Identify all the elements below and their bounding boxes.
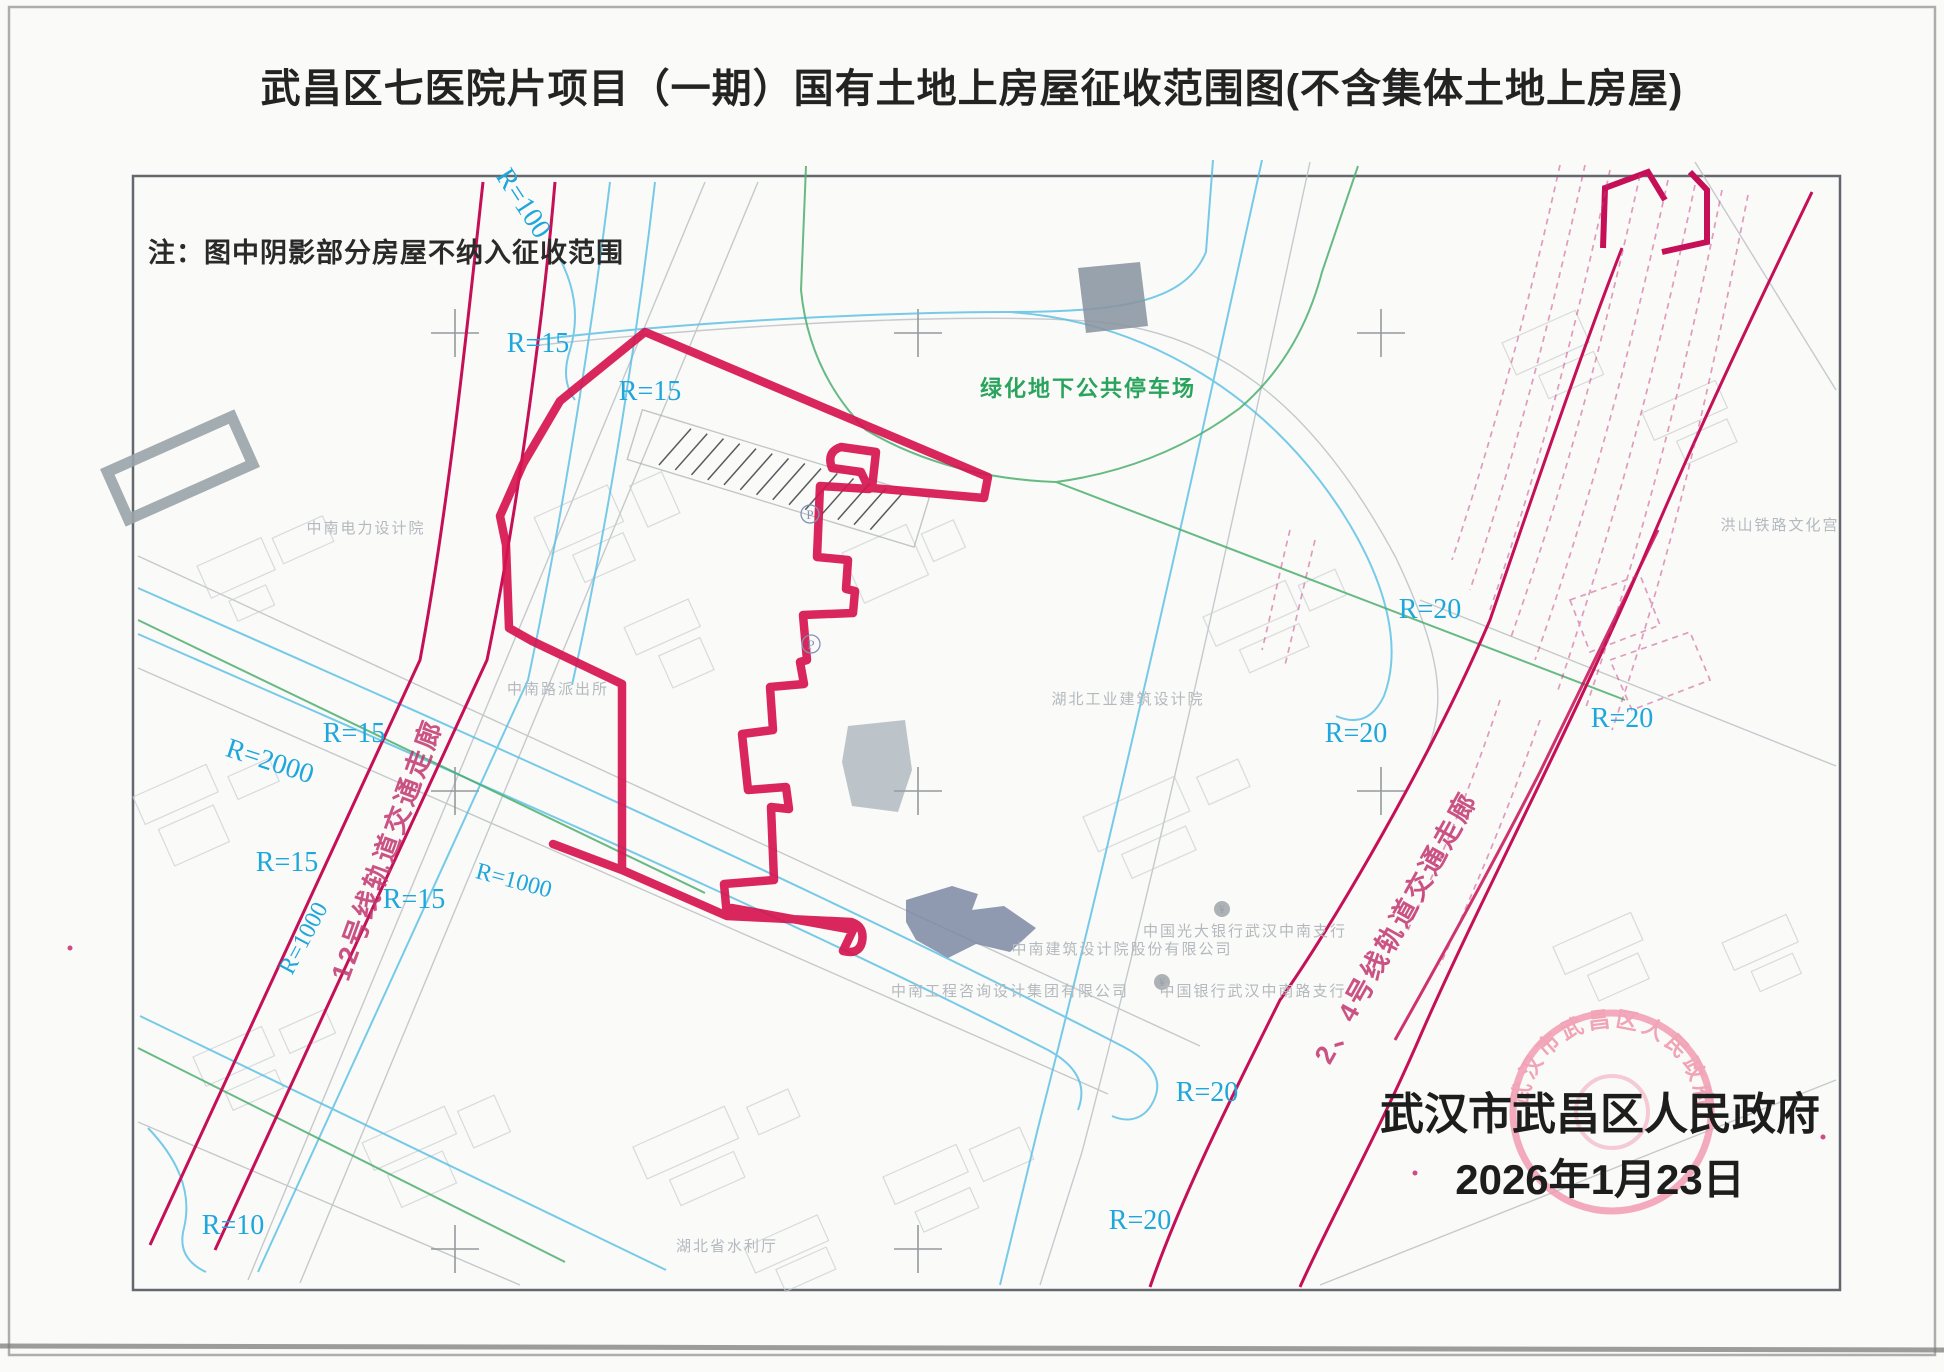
- svg-text:¥: ¥: [1219, 902, 1225, 916]
- building-label: 洪山铁路文化宫: [1720, 517, 1839, 534]
- radius-label: R=1000: [473, 858, 555, 903]
- survey-cross-marks: [431, 309, 1405, 1273]
- radius-label: R=15: [323, 718, 385, 749]
- svg-text:P: P: [806, 507, 813, 522]
- radius-label: R=20: [1109, 1205, 1171, 1236]
- radius-label: R=20: [1399, 594, 1461, 625]
- issue-date: 2026年1月23日: [1370, 1146, 1830, 1207]
- shaded-building-mid: [842, 720, 912, 812]
- radius-label: R=20: [1325, 718, 1387, 749]
- radius-label: R=15: [256, 847, 318, 878]
- map-title: 武昌区七医院片项目（一期）国有土地上房屋征收范围图(不含集体土地上房屋): [0, 56, 1944, 114]
- radius-label: R=2000: [222, 733, 318, 790]
- radius-label: R=20: [1591, 703, 1653, 734]
- scan-edge-line: [0, 1346, 1944, 1350]
- radius-label: R=1000: [274, 898, 333, 979]
- building-label: 中南工程咨询设计集团有限公司: [891, 983, 1129, 1000]
- building-label: 中南路派出所: [507, 681, 609, 698]
- radius-label: R=15: [383, 884, 445, 915]
- shaded-building-top: [1078, 262, 1148, 333]
- issuing-authority: 武汉市武昌区人民政府: [1370, 1078, 1830, 1142]
- scribble-band: [1262, 165, 1748, 965]
- building-label: 湖北工业建筑设计院: [1051, 690, 1204, 708]
- building-label: 中国光大银行武汉中南支行: [1143, 923, 1347, 940]
- shaded-building-outline: [107, 417, 252, 520]
- radius-label: R=10: [202, 1210, 264, 1241]
- bank-symbol: ¥: [1214, 901, 1230, 917]
- scanned-map-page: P P ¥ ¥ R=100 R=15 R=15 R=15 R=15 R=15 R…: [0, 0, 1944, 1372]
- green-parking-label: 绿化地下公共停车场: [980, 376, 1196, 401]
- building-label: 中国银行武汉中南路支行: [1159, 983, 1346, 1000]
- radius-label: R=15: [619, 376, 681, 407]
- building-label: 中南电力设计院: [306, 519, 425, 537]
- corridor-label-line12: 12号线轨道交通走廊: [325, 714, 449, 984]
- radius-label: R=20: [1176, 1077, 1238, 1108]
- shading-note: 注：图中阴影部分房屋不纳入征收范围: [148, 231, 624, 270]
- building-label: 中南建筑设计院股份有限公司: [1011, 940, 1232, 958]
- building-label: 湖北省水利厅: [676, 1238, 778, 1255]
- svg-text:P: P: [807, 637, 814, 652]
- radius-label: R=15: [507, 328, 569, 359]
